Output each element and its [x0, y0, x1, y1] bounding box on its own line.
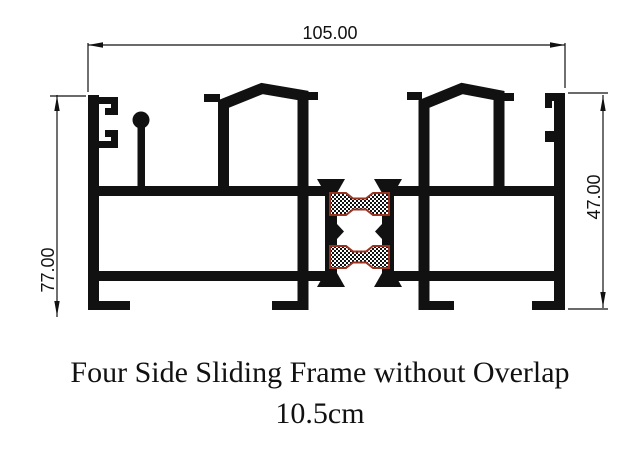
- arrow-left-down: [54, 301, 59, 316]
- left-track-dome: [224, 89, 304, 193]
- arrow-right-down: [600, 292, 605, 307]
- right-outer-foot: [532, 301, 565, 310]
- seal-bottom: [330, 246, 389, 268]
- profile-cross-section: [88, 92, 565, 310]
- left-dome-tab-left: [204, 94, 220, 102]
- right-side-nub: [545, 131, 554, 142]
- arrow-left-up: [54, 96, 59, 111]
- left-inner-foot: [272, 301, 309, 310]
- left-inner-wall: [298, 186, 309, 310]
- caption-title: Four Side Sliding Frame without Overlap: [0, 352, 640, 393]
- arrow-top-right: [550, 42, 565, 48]
- arrow-right-up: [600, 96, 605, 111]
- arrow-top-left: [88, 42, 103, 48]
- right-inner-wall: [419, 186, 430, 310]
- caption-size: 10.5cm: [0, 393, 640, 434]
- caption: Four Side Sliding Frame without Overlap …: [0, 352, 640, 434]
- seal-top: [330, 193, 389, 215]
- dim-left-label: 77.00: [38, 247, 58, 292]
- dimension-labels: 105.00 77.00 47.00: [38, 23, 604, 293]
- left-outer-foot: [88, 301, 130, 310]
- left-bottom-rail: [88, 271, 330, 281]
- right-mid-rail: [390, 186, 565, 196]
- bead-stem: [138, 124, 146, 192]
- right-track-dome: [424, 89, 499, 193]
- left-gasket-hook-top: [99, 97, 118, 115]
- left-mid-rail: [88, 186, 330, 196]
- right-inner-foot: [419, 301, 455, 310]
- right-dome-tab-left: [407, 92, 422, 100]
- right-bottom-rail: [390, 271, 565, 281]
- right-outer-wall: [554, 95, 565, 310]
- bead-bulb: [133, 112, 150, 129]
- page: 105.00 77.00 47.00 Four Side Sliding Fra…: [0, 0, 640, 450]
- left-gasket-hook-bottom: [99, 130, 118, 148]
- dim-right-label: 47.00: [584, 174, 604, 219]
- dim-top-label: 105.00: [302, 23, 357, 43]
